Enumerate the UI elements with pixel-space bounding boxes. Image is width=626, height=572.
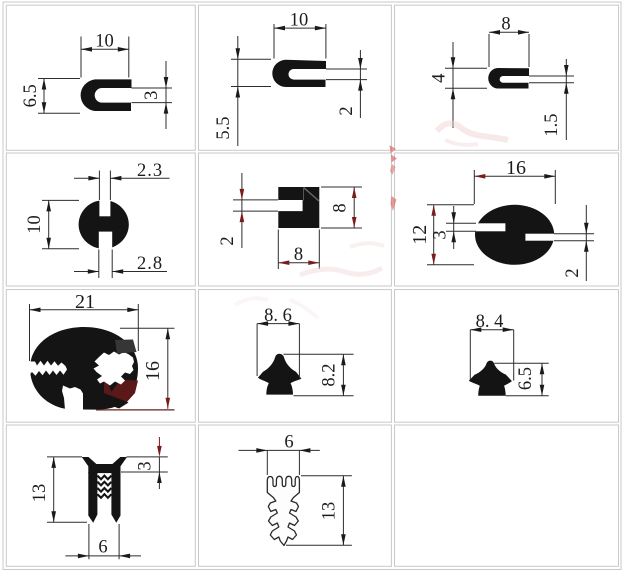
svg-text:1.5: 1.5 [542, 113, 562, 136]
svg-text:8.2: 8.2 [320, 363, 340, 386]
svg-text:6: 6 [284, 433, 293, 453]
svg-text:12: 12 [409, 225, 431, 245]
svg-text:8. 6: 8. 6 [264, 306, 292, 326]
svg-text:8: 8 [294, 245, 303, 265]
svg-text:6: 6 [98, 538, 107, 558]
svg-text:13: 13 [30, 484, 50, 503]
svg-text:3: 3 [136, 461, 156, 470]
svg-text:3: 3 [142, 91, 162, 100]
svg-text:10: 10 [290, 10, 309, 30]
svg-text:10: 10 [95, 32, 114, 52]
svg-text:2: 2 [337, 106, 357, 115]
svg-text:4: 4 [430, 74, 450, 83]
svg-text:2.3: 2.3 [137, 161, 163, 181]
svg-text:2: 2 [218, 236, 238, 245]
svg-text:5.5: 5.5 [214, 116, 234, 139]
svg-text:13: 13 [320, 502, 340, 521]
svg-text:6.5: 6.5 [516, 367, 536, 390]
svg-text:8: 8 [331, 203, 351, 212]
svg-text:3: 3 [431, 230, 451, 239]
svg-text:2: 2 [563, 268, 583, 277]
svg-text:2.8: 2.8 [137, 254, 163, 274]
svg-text:10: 10 [25, 215, 45, 234]
svg-text:16: 16 [506, 157, 526, 179]
svg-text:8: 8 [501, 15, 510, 35]
svg-text:16: 16 [142, 361, 164, 381]
svg-text:8. 4: 8. 4 [476, 312, 504, 332]
svg-text:6.5: 6.5 [21, 84, 41, 107]
svg-text:21: 21 [75, 291, 95, 313]
